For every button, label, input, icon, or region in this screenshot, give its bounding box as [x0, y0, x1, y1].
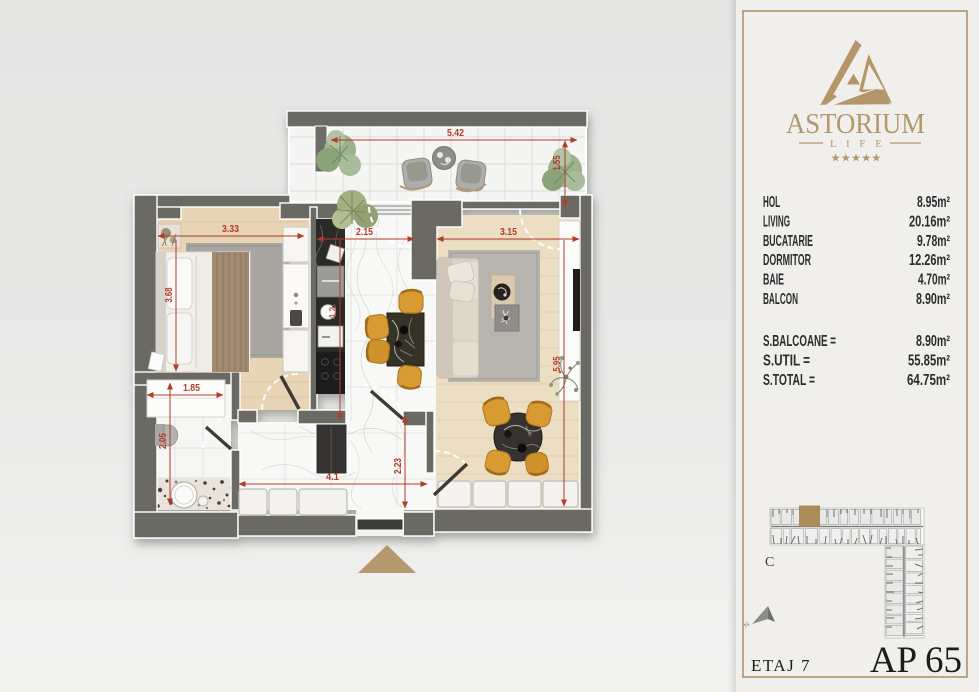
svg-text:S.TOTAL =: S.TOTAL =	[763, 372, 815, 389]
svg-text:3.15: 3.15	[500, 227, 517, 238]
svg-text:5.42: 5.42	[447, 128, 464, 139]
svg-text:HOL: HOL	[763, 194, 780, 211]
svg-text:9.78m²: 9.78m²	[917, 233, 950, 250]
svg-text:S.BALCOANE =: S.BALCOANE =	[763, 333, 836, 350]
svg-text:4.1: 4.1	[326, 472, 339, 483]
svg-text:4.70m²: 4.70m²	[918, 272, 950, 289]
svg-text:12.26m²: 12.26m²	[909, 252, 950, 269]
svg-text:3.33: 3.33	[222, 224, 239, 235]
svg-text:2.05: 2.05	[158, 433, 169, 449]
svg-text:ETAJ 7: ETAJ 7	[751, 656, 811, 675]
svg-text:BAIE: BAIE	[763, 272, 784, 289]
svg-text:BUCATARIE: BUCATARIE	[763, 233, 813, 250]
svg-text:8.90m²: 8.90m²	[916, 333, 950, 350]
svg-text:5.95: 5.95	[552, 356, 563, 371]
svg-text:DORMITOR: DORMITOR	[763, 252, 811, 269]
svg-text:LIVING: LIVING	[763, 213, 790, 230]
svg-text:8.90m²: 8.90m²	[916, 291, 950, 308]
svg-text:1.55: 1.55	[552, 155, 563, 170]
svg-text:1.85: 1.85	[183, 383, 200, 394]
svg-text:55.85m²: 55.85m²	[908, 353, 950, 370]
svg-text:C: C	[765, 555, 774, 570]
svg-text:2.23: 2.23	[393, 458, 404, 474]
svg-text:4.2: 4.2	[328, 307, 339, 319]
svg-text:AP 65: AP 65	[870, 640, 962, 681]
svg-text:★★★★★: ★★★★★	[831, 153, 882, 165]
svg-text:20.16m²: 20.16m²	[909, 213, 950, 230]
svg-text:ASTORIUM: ASTORIUM	[786, 108, 925, 140]
svg-text:8.95m²: 8.95m²	[917, 194, 950, 211]
svg-text:64.75m²: 64.75m²	[907, 372, 950, 389]
svg-text:2.15: 2.15	[356, 227, 373, 238]
svg-text:3.68: 3.68	[164, 287, 175, 302]
svg-text:S.UTIL =: S.UTIL =	[763, 353, 810, 370]
svg-text:BALCON: BALCON	[763, 291, 798, 308]
